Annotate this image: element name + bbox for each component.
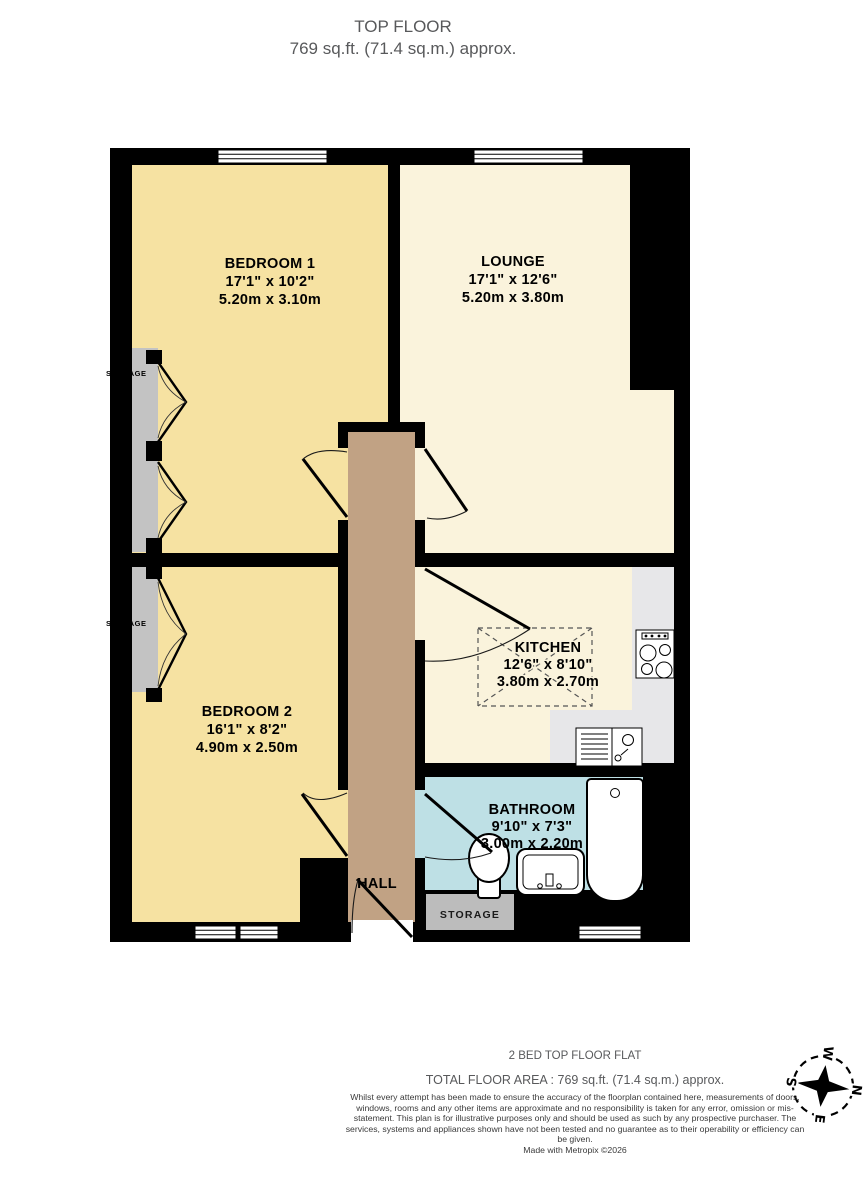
hall-floor — [348, 432, 415, 922]
bedroom1-name: BEDROOM 1 — [225, 256, 316, 272]
footer: 2 BED TOP FLOOR FLAT TOTAL FLOOR AREA : … — [345, 1050, 805, 1156]
window-lounge — [474, 150, 583, 163]
bedroom2-storage-label: STORAGE — [106, 619, 146, 628]
wall-mid-right — [425, 553, 690, 567]
disclaimer: Whilst every attempt has been made to en… — [345, 1092, 805, 1145]
lounge-metric: 5.20m x 3.80m — [462, 290, 564, 306]
kitchen-metric: 3.80m x 2.70m — [497, 674, 599, 690]
bedroom1-storage-label: STORAGE — [106, 369, 146, 378]
hall-storage-label: STORAGE — [440, 909, 500, 921]
closet-jamb — [146, 350, 162, 364]
wall-hall-right-seg — [415, 422, 425, 448]
wall-mid-left — [110, 553, 338, 567]
entrance-opening — [351, 920, 413, 943]
compass-east: E — [811, 1113, 827, 1124]
lounge-imperial: 17'1" x 12'6" — [468, 272, 557, 288]
wall-hall-right-seg — [415, 520, 425, 567]
wall-hall-top — [338, 422, 425, 432]
bedroom1-metric: 5.20m x 3.10m — [219, 292, 321, 308]
kitchen-imperial: 12'6" x 8'10" — [503, 657, 592, 673]
wall-hall-right-seg — [415, 858, 425, 942]
kitchen-sink-icon — [576, 728, 642, 766]
wall-hall-right-seg — [415, 640, 425, 790]
bathroom-imperial: 9'10" x 7'3" — [492, 819, 573, 835]
window-bedroom2-left — [195, 926, 236, 939]
bedroom2-metric: 4.90m x 2.50m — [196, 740, 298, 756]
floorplan-page: TOP FLOOR 769 sq.ft. (71.4 sq.m.) approx… — [0, 0, 863, 1200]
bedroom2-name: BEDROOM 2 — [202, 704, 293, 720]
bedroom1-imperial: 17'1" x 10'2" — [225, 274, 314, 290]
window-bedroom2-right — [240, 926, 278, 939]
metropix-credit: Made with Metropix ©2026 — [345, 1145, 805, 1156]
closet-jamb — [146, 565, 162, 579]
kitchen-name: KITCHEN — [515, 640, 582, 656]
compass-west: W — [819, 1045, 836, 1061]
window-bedroom1 — [218, 150, 327, 163]
total-floor-area: TOTAL FLOOR AREA : 769 sq.ft. (71.4 sq.m… — [345, 1073, 805, 1087]
hall-name: HALL — [357, 876, 397, 892]
compass-north: N — [848, 1084, 863, 1097]
hob-icon — [636, 630, 674, 678]
wall-bedroom2-corner — [300, 858, 348, 942]
property-type: 2 BED TOP FLOOR FLAT — [345, 1050, 805, 1062]
wall-hall-left-seg — [338, 422, 348, 448]
floorplan-drawing: BEDROOM 1 17'1" x 10'2" 5.20m x 3.10m LO… — [0, 0, 863, 1200]
wall-right-upper — [630, 148, 690, 390]
bedroom2-imperial: 16'1" x 8'2" — [207, 722, 288, 738]
closet-jamb — [146, 688, 162, 702]
window-bathroom — [579, 926, 641, 939]
wall-bedroom1-lounge — [388, 162, 400, 432]
closet-jamb — [146, 441, 162, 461]
bathtub-icon — [587, 779, 643, 901]
bathroom-metric: 3.00m x 2.20m — [481, 836, 583, 852]
bathroom-name: BATHROOM — [489, 802, 576, 818]
wall-left — [110, 148, 132, 942]
wall-hall-left-seg — [338, 520, 348, 790]
basin-icon — [517, 849, 584, 895]
lounge-name: LOUNGE — [481, 254, 545, 270]
